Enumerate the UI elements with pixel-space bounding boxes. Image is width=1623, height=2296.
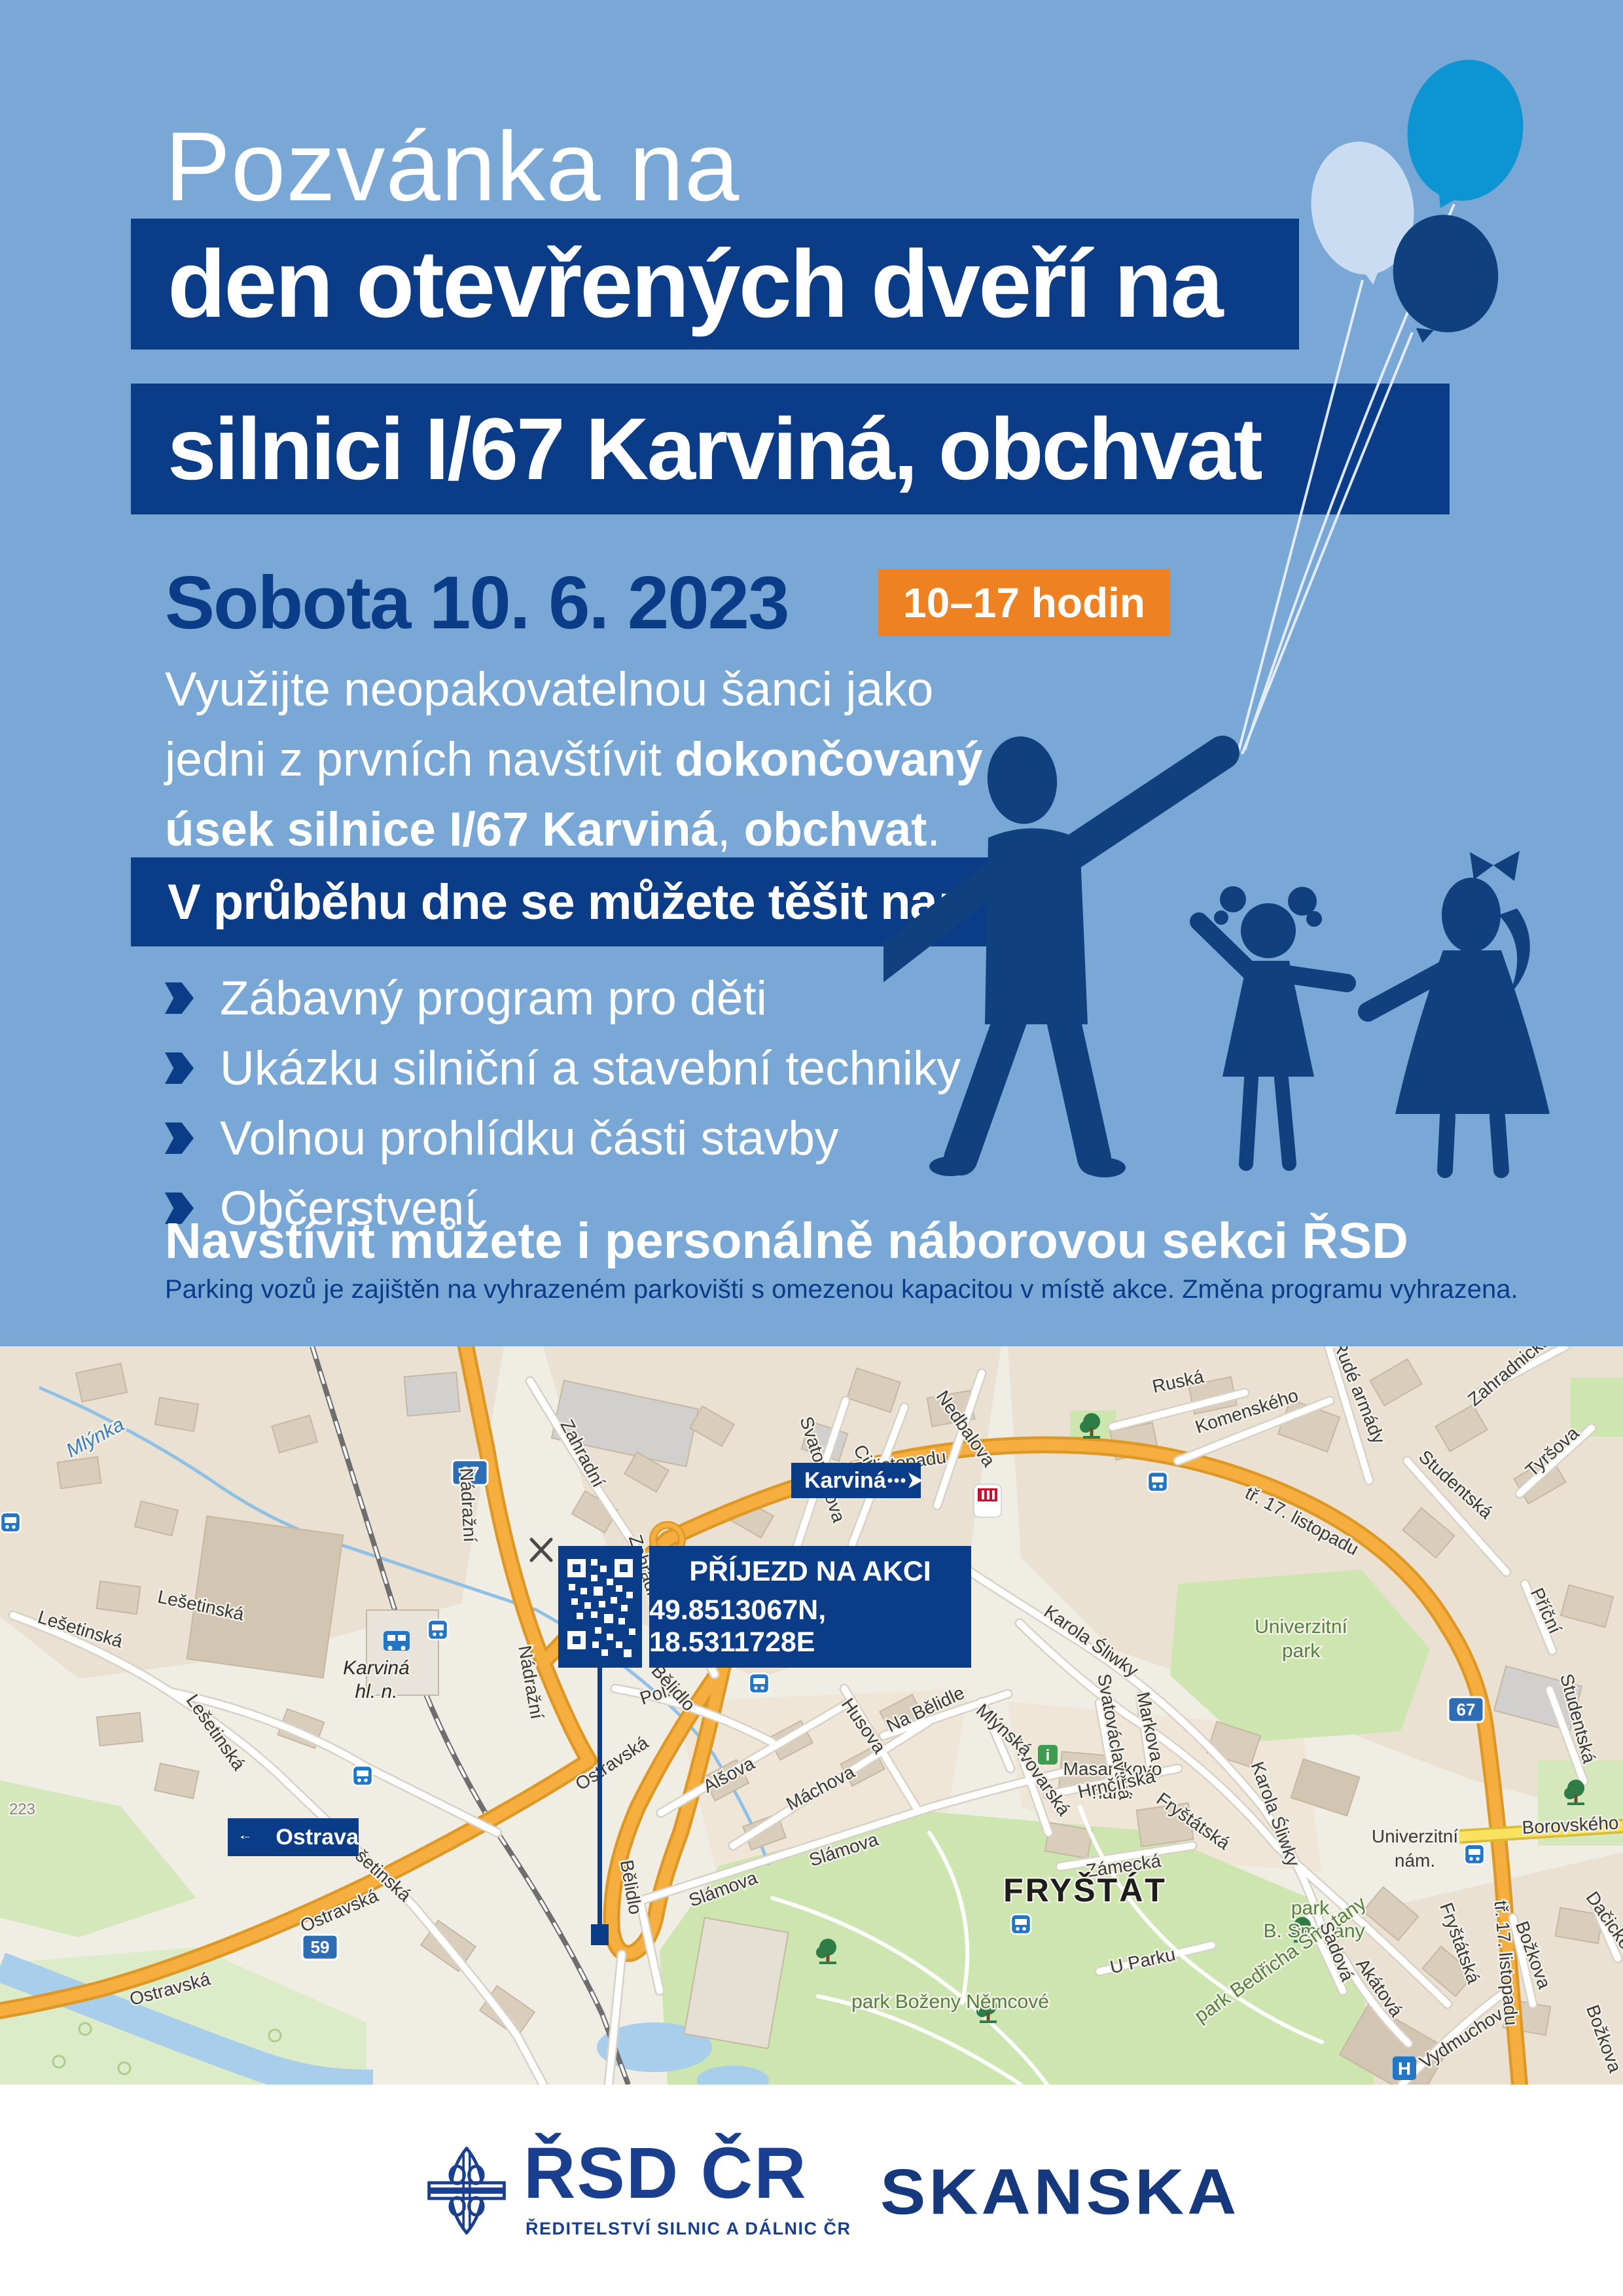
benefit-item-label: Ukázku silniční a stavební techniky [220,1041,961,1096]
map-street-label: Nádražní [456,1467,480,1543]
benefit-item-label: Volnou prohlídku části stavby [220,1111,839,1166]
bus-stop-icon [749,1674,769,1693]
event-date: Sobota 10. 6. 2023 [165,560,788,646]
rsd-logo-text: ŘSD ČR [524,2132,808,2215]
road-number-text: 67 [1457,1700,1476,1719]
eyebrow-title: Pozvánka na [165,110,740,223]
bullet-arrow-icon [165,1052,194,1084]
rsd-logo-icon [427,2147,506,2234]
map-street-label: nám. [1395,1850,1435,1871]
map-station-label: Karviná [343,1657,410,1679]
map-ref-label: 223 [9,1801,35,1818]
intro-line1: Využijte neopakovatelnou šanci jako [165,663,933,716]
bus-stop-icon [1,1513,20,1532]
map-street-label: Univerzitní [1372,1826,1458,1846]
road-number-badge: 67 [1448,1697,1484,1722]
train-icon [383,1631,410,1651]
arrival-coordinates: 49.8513067N, 18.5311728E [649,1594,971,1659]
map-green-label: park Boženy Němcové [851,1991,1049,2013]
father-figure [883,733,1222,1177]
qr-code [558,1546,642,1668]
arrow-right-icon [886,1471,927,1490]
kfc-icon [974,1484,1001,1517]
skanska-logo: SKANSKA [880,2155,1240,2229]
map-canvas: H i [0,1346,1623,2085]
svg-text:i: i [1046,1747,1050,1765]
qr-code-icon [558,1546,642,1668]
bus-stop-icon [428,1620,448,1640]
hospital-icon: H [1393,2056,1416,2080]
road-number-badge: 59 [302,1935,338,1960]
map-green-label: Univerzitní [1255,1616,1347,1638]
benefit-item: Volnou prohlídku části stavby [165,1114,961,1162]
mother-figure [1368,851,1550,1170]
bus-stop-icon [1011,1914,1031,1934]
intro-line2: jedni z prvních navštívit [165,733,675,786]
arrival-callout: PŘÍJEZD NA AKCI 49.8513067N, 18.5311728E [649,1546,971,1668]
intro-line3-bold1: úsek silnice I/67 Karviná [165,803,717,856]
road-number-text: 59 [311,1937,330,1957]
parking-note: Parking vozů je zajištěn na vyhrazeném p… [165,1275,1518,1304]
intro-line3-sep: , [717,803,744,856]
bullet-arrow-icon [165,982,194,1014]
poster: Pozvánka na den otevřených dveří na siln… [0,0,1623,2296]
rsd-logo-subtitle: ŘEDITELSTVÍ SILNIC A DÁLNIC ČR [526,2219,851,2239]
family-silhouette [883,733,1550,1177]
arrow-left-icon [240,1827,249,1847]
map-district-label: FRYŠTÁT [1003,1871,1167,1909]
map-station-label: hl. n. [355,1681,397,1702]
balloon-bright-icon [1397,52,1532,218]
family-balloons-illustration [883,20,1623,1198]
map-green-label: park [1282,1640,1321,1662]
list-header: V průběhu dne se můžete těšit na: [168,874,953,931]
recruitment-note: Navštívit můžete i personálně náborovou … [165,1212,1408,1270]
bus-stop-icon [1148,1472,1168,1492]
arrival-title: PŘÍJEZD NA AKCI [689,1556,931,1588]
balloons [1303,52,1533,346]
direction-karvina-label: Karviná [804,1468,886,1494]
bullet-arrow-icon [165,1122,194,1154]
location-map: H i [0,1346,1623,2085]
child-figure [1199,886,1347,1164]
arrival-marker-dot [591,1924,609,1945]
list-header-banner: V průběhu dne se můžete těšit na: [131,857,990,946]
direction-sign-karvina: Karviná [791,1463,921,1498]
benefit-item: Ukázku silniční a stavební techniky [165,1044,961,1092]
footer: ŘSD ČR ŘEDITELSTVÍ SILNIC A DÁLNIC ČR SK… [0,2085,1623,2296]
arrival-marker-line [597,1668,602,1927]
bus-stop-icon [353,1766,372,1785]
direction-sign-ostrava: Ostrava [228,1818,359,1856]
bus-stop-icon [1465,1844,1484,1864]
benefit-item: Zábavný program pro děti [165,974,961,1022]
direction-ostrava-label: Ostrava [276,1825,359,1850]
benefit-item-label: Zábavný program pro děti [220,971,767,1026]
svg-text:H: H [1398,2058,1411,2079]
